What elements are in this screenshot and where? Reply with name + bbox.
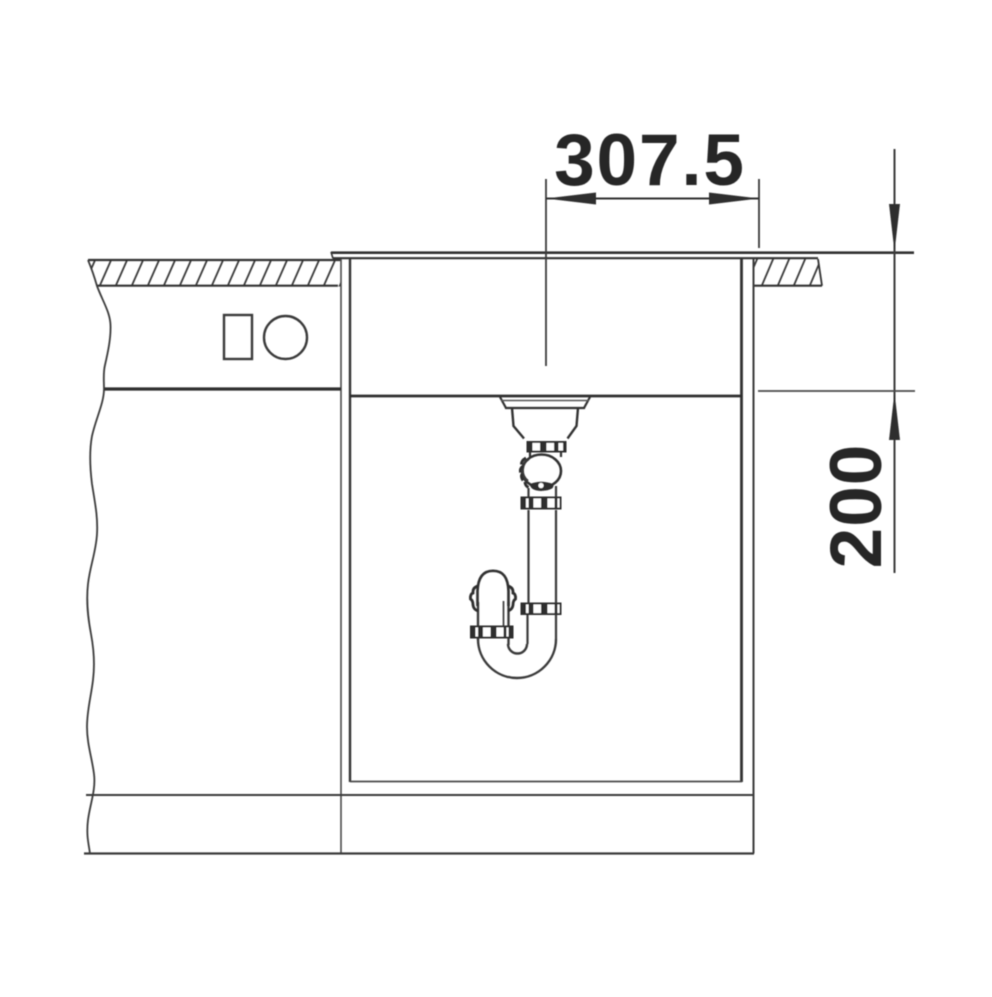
svg-text:307.5: 307.5 [554,120,746,201]
svg-text:200: 200 [816,444,897,569]
